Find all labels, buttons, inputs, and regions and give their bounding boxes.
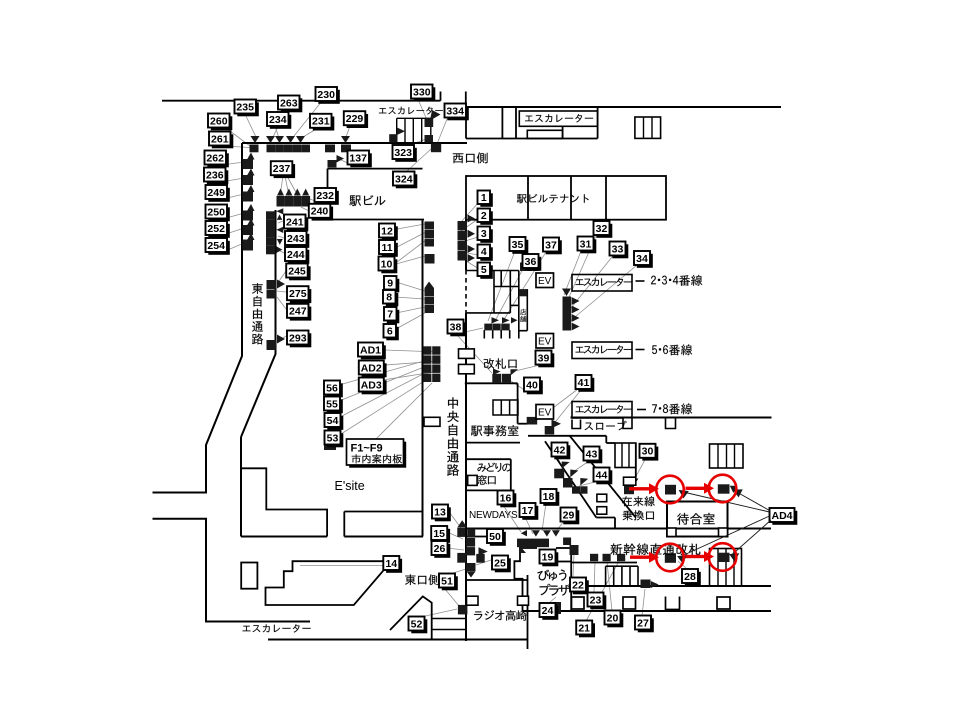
svg-text:260: 260 [210,115,228,127]
svg-text:18: 18 [543,491,555,503]
svg-text:53: 53 [327,432,339,444]
svg-text:14: 14 [385,558,397,570]
svg-text:231: 231 [312,116,330,128]
svg-text:28: 28 [684,571,696,583]
svg-text:16: 16 [500,492,512,504]
svg-text:236: 236 [206,169,224,181]
svg-text:232: 232 [316,190,334,202]
svg-text:334: 334 [446,105,464,117]
svg-text:56: 56 [326,382,338,394]
svg-text:37: 37 [545,239,557,251]
svg-text:10: 10 [381,258,393,270]
svg-text:137: 137 [349,152,367,164]
svg-text:12: 12 [381,225,393,237]
svg-text:39: 39 [538,352,550,364]
svg-text:324: 324 [395,173,413,185]
svg-text:AD3: AD3 [361,379,382,391]
svg-text:AD1: AD1 [360,344,381,356]
svg-text:55: 55 [326,398,338,410]
svg-text:13: 13 [434,506,446,518]
svg-text:41: 41 [578,377,590,389]
svg-text:54: 54 [327,415,339,427]
svg-text:31: 31 [580,238,592,250]
svg-text:21: 21 [578,622,590,634]
svg-text:AD4: AD4 [771,510,792,522]
svg-text:AD2: AD2 [361,362,382,374]
svg-text:254: 254 [207,240,225,252]
svg-text:1: 1 [481,192,487,204]
svg-text:38: 38 [450,321,462,333]
svg-text:52: 52 [411,618,423,630]
svg-text:32: 32 [596,223,608,235]
svg-text:263: 263 [280,97,298,109]
svg-text:27: 27 [637,617,649,629]
svg-text:44: 44 [596,469,608,481]
svg-text:17: 17 [522,505,534,517]
svg-text:235: 235 [236,101,254,113]
svg-text:241: 241 [286,216,304,228]
svg-text:2: 2 [481,210,487,222]
svg-text:22: 22 [572,579,584,591]
svg-text:250: 250 [207,206,225,218]
svg-text:243: 243 [287,233,305,245]
svg-text:252: 252 [207,223,225,235]
svg-text:51: 51 [441,575,453,587]
svg-text:35: 35 [512,239,524,251]
svg-text:EV: EV [538,408,552,419]
svg-text:EV: EV [538,276,552,287]
svg-text:23: 23 [590,594,602,606]
svg-text:11: 11 [381,242,392,254]
svg-text:42: 42 [554,444,566,456]
svg-text:7: 7 [387,309,393,321]
svg-text:NEWDAYS: NEWDAYS [469,510,518,521]
svg-text:229: 229 [346,113,364,125]
svg-text:237: 237 [273,163,291,175]
svg-text:F1~F9: F1~F9 [351,442,383,454]
svg-text:29: 29 [563,509,575,521]
svg-text:15: 15 [433,528,445,540]
svg-text:323: 323 [394,147,412,159]
svg-text:247: 247 [289,306,307,318]
svg-text:50: 50 [489,531,501,543]
svg-text:20: 20 [607,612,619,624]
svg-text:30: 30 [642,446,654,458]
svg-text:6: 6 [387,326,393,338]
svg-text:36: 36 [525,256,537,268]
svg-text:245: 245 [288,265,306,277]
svg-text:330: 330 [413,86,431,98]
svg-text:34: 34 [636,253,648,265]
svg-text:40: 40 [526,379,538,391]
svg-text:EV: EV [538,337,552,348]
svg-text:19: 19 [542,551,554,563]
svg-text:33: 33 [612,243,624,255]
svg-text:43: 43 [586,448,598,460]
svg-text:230: 230 [317,89,335,101]
svg-text:244: 244 [287,249,305,261]
svg-text:26: 26 [434,543,446,555]
svg-text:234: 234 [269,114,287,126]
svg-text:4: 4 [481,246,487,258]
svg-text:25: 25 [494,557,506,569]
svg-text:24: 24 [542,605,554,617]
svg-text:293: 293 [289,332,307,344]
svg-text:249: 249 [207,187,225,199]
svg-text:8: 8 [386,292,392,304]
svg-text:262: 262 [206,152,224,164]
svg-text:E'site: E'site [335,479,365,493]
svg-text:9: 9 [387,278,393,290]
svg-text:5: 5 [481,264,487,276]
svg-text:261: 261 [211,133,229,145]
svg-text:240: 240 [311,206,329,218]
svg-text:275: 275 [289,288,307,300]
svg-text:3: 3 [481,228,487,240]
